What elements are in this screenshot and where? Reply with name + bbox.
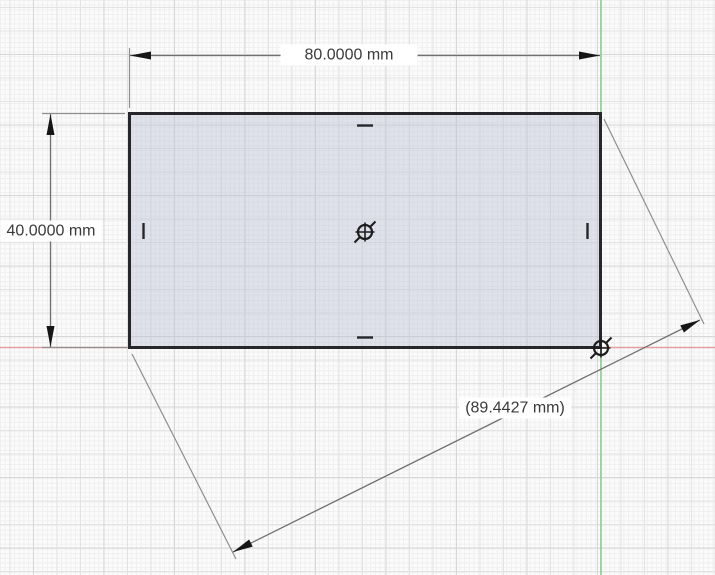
arrowhead-diagonal-sw-icon (233, 540, 253, 553)
sketch-geometry (0, 0, 715, 575)
extension-line-diagonal-topright (604, 119, 704, 324)
arrowhead-right-icon (579, 52, 600, 60)
arrowhead-left-icon (130, 52, 151, 60)
arrowhead-down-icon (47, 326, 55, 347)
dimension-label-height[interactable]: 40.0000 mm (1, 221, 102, 242)
dimension-diagonal[interactable] (233, 320, 700, 552)
arrowhead-up-icon (47, 114, 55, 135)
dimension-diagonal-line[interactable] (233, 320, 700, 552)
sketch-canvas: 80.0000 mm 40.0000 mm (89.4427 mm) (0, 0, 715, 575)
dimension-label-width[interactable]: 80.0000 mm (281, 45, 418, 66)
extension-line-diagonal-bottomleft (132, 354, 236, 559)
dimension-label-diagonal[interactable]: (89.4427 mm) (459, 398, 571, 419)
arrowhead-diagonal-ne-icon (680, 320, 700, 333)
